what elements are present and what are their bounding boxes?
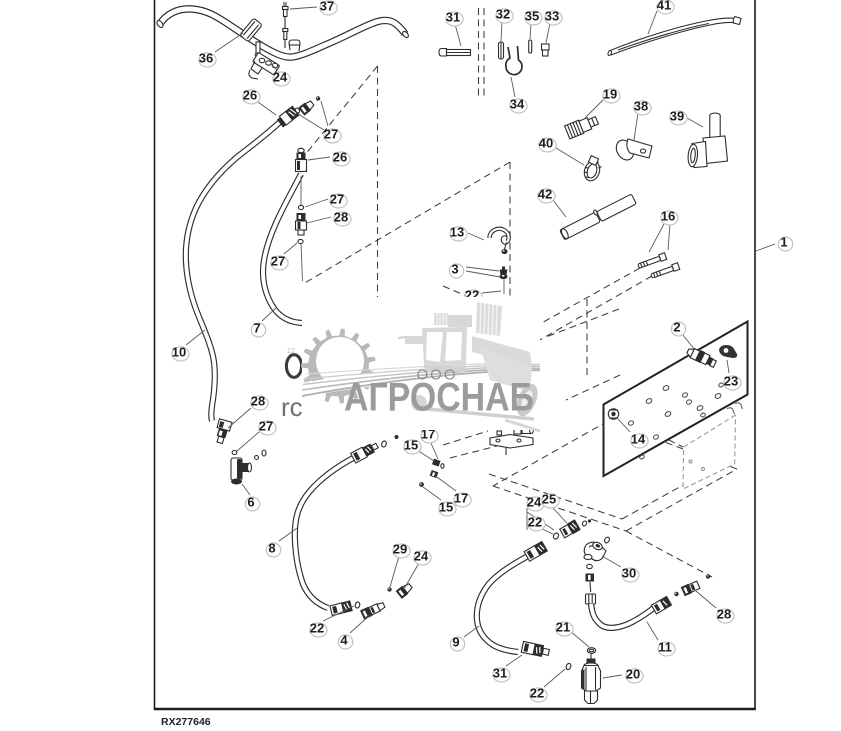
svg-text:19: 19: [603, 87, 617, 102]
svg-text:25: 25: [542, 492, 556, 507]
svg-text:16: 16: [661, 209, 675, 224]
svg-text:7: 7: [253, 321, 260, 336]
svg-text:31: 31: [446, 10, 460, 25]
svg-text:36: 36: [199, 51, 213, 66]
svg-text:27: 27: [330, 192, 344, 207]
svg-text:33: 33: [545, 9, 559, 24]
svg-text:11: 11: [658, 640, 672, 655]
svg-text:20: 20: [626, 667, 640, 682]
svg-text:4: 4: [340, 633, 348, 648]
svg-text:34: 34: [510, 97, 525, 112]
svg-text:3: 3: [451, 262, 458, 277]
svg-text:28: 28: [717, 607, 731, 622]
svg-text:23: 23: [724, 374, 738, 389]
svg-text:15: 15: [439, 500, 453, 515]
svg-text:22: 22: [530, 686, 544, 701]
svg-text:1: 1: [780, 235, 787, 250]
svg-text:24: 24: [273, 70, 288, 85]
svg-text:27: 27: [259, 419, 273, 434]
svg-text:14: 14: [631, 432, 646, 447]
svg-text:21: 21: [556, 620, 570, 635]
svg-text:24: 24: [527, 495, 542, 510]
svg-text:9: 9: [452, 635, 459, 650]
svg-text:15: 15: [404, 438, 418, 453]
svg-text:22: 22: [528, 515, 542, 530]
svg-text:24: 24: [414, 549, 429, 564]
svg-text:28: 28: [334, 210, 348, 225]
svg-text:38: 38: [634, 99, 648, 114]
svg-text:2: 2: [673, 320, 680, 335]
svg-text:rc: rc: [281, 392, 303, 422]
svg-text:28: 28: [251, 394, 265, 409]
svg-text:10: 10: [172, 345, 186, 360]
svg-text:39: 39: [670, 109, 684, 124]
svg-text:АГРОСНАБ: АГРОСНАБ: [344, 376, 534, 420]
svg-text:29: 29: [393, 542, 407, 557]
svg-text:26: 26: [243, 88, 257, 103]
svg-text:41: 41: [657, 0, 671, 13]
svg-text:8: 8: [268, 541, 275, 556]
svg-text:42: 42: [538, 187, 552, 202]
svg-text:35: 35: [525, 9, 539, 24]
svg-text:22: 22: [310, 621, 324, 636]
svg-text:27: 27: [271, 254, 285, 269]
svg-text:26: 26: [333, 150, 347, 165]
svg-text:RX277646: RX277646: [161, 716, 211, 728]
svg-text:32: 32: [496, 7, 510, 22]
svg-text:17: 17: [454, 491, 468, 506]
svg-text:40: 40: [539, 136, 553, 151]
svg-text:27: 27: [324, 127, 338, 142]
svg-text:6: 6: [247, 495, 254, 510]
svg-text:30: 30: [622, 566, 636, 581]
svg-text:37: 37: [320, 0, 334, 14]
svg-text:31: 31: [493, 666, 507, 681]
svg-text:13: 13: [450, 225, 464, 240]
